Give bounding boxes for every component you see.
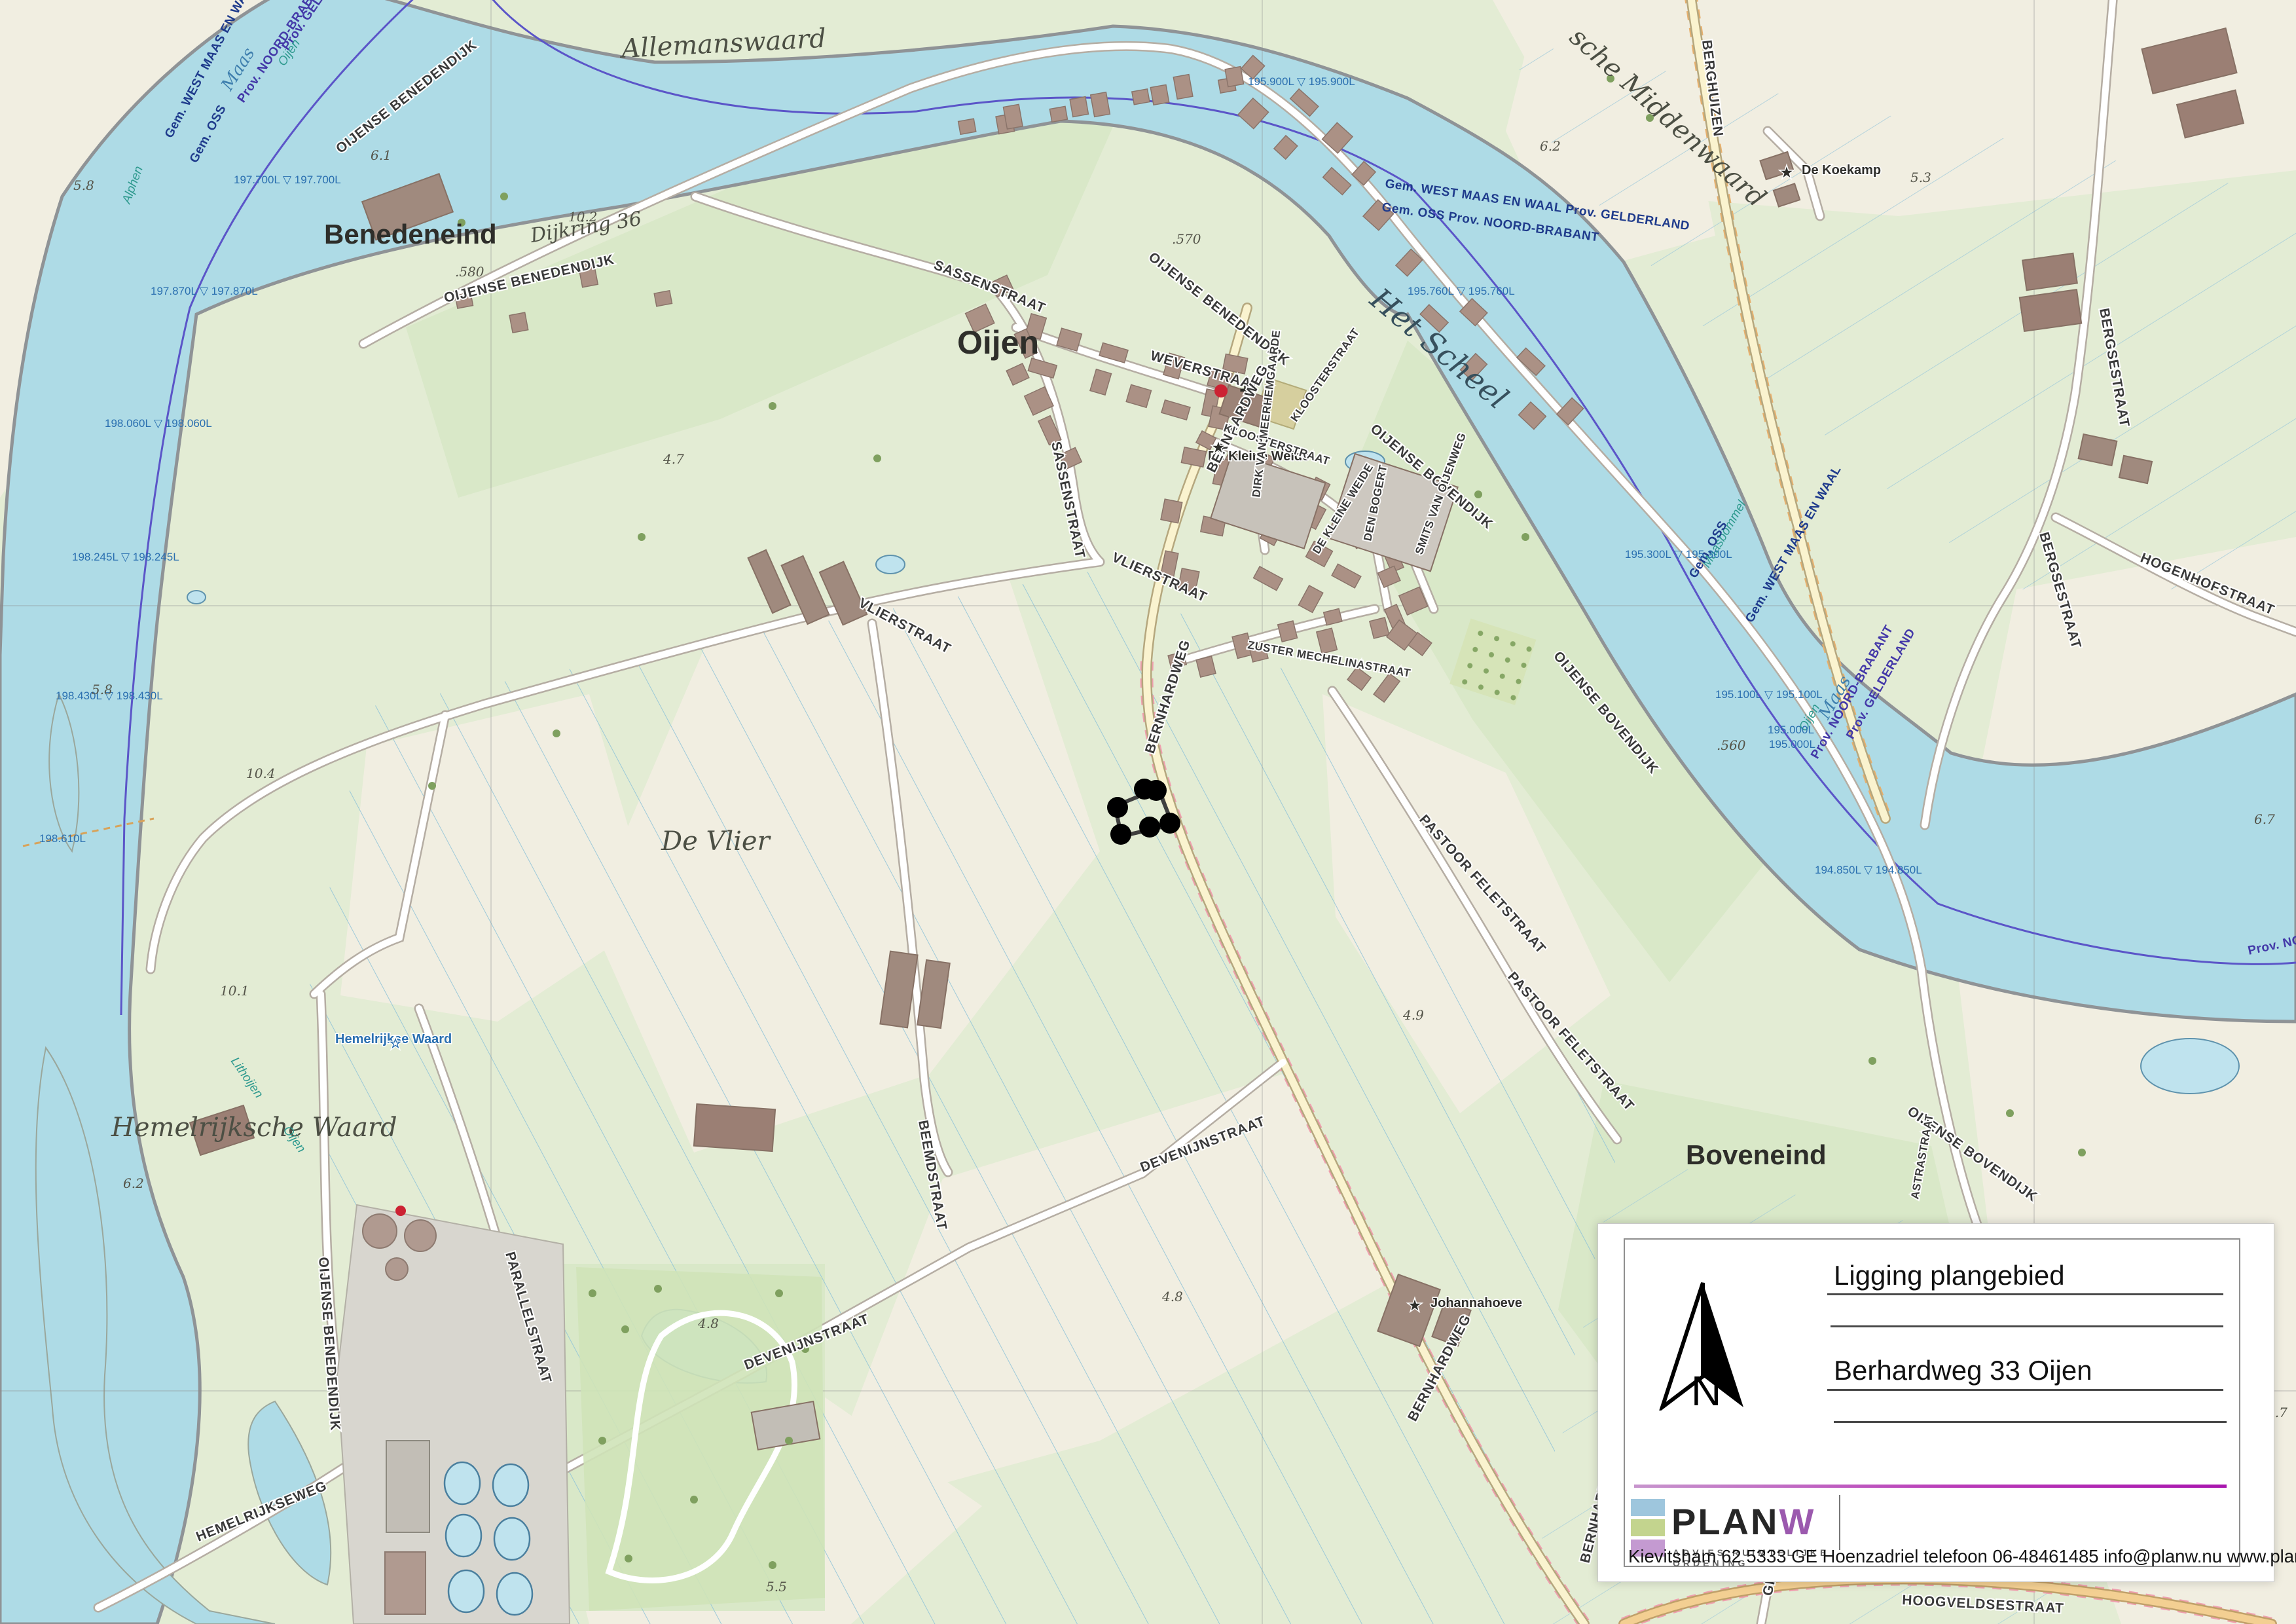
village-building — [1150, 84, 1169, 105]
treatment-plant — [337, 1205, 570, 1624]
map-label: 198.245L ▽ 198.245L — [72, 551, 179, 563]
village-building — [509, 312, 528, 333]
tree-icon — [428, 782, 436, 790]
tree-icon — [690, 1496, 698, 1504]
legend-line-2 — [1831, 1325, 2223, 1327]
village-building — [1070, 97, 1088, 117]
map-label: 6.2 — [123, 1175, 144, 1191]
village-building — [1091, 92, 1110, 117]
map-label: 195.100L ▽ 195.100L — [1715, 688, 1823, 701]
tree-icon — [598, 1437, 606, 1445]
legend-accent-rule — [1634, 1485, 2227, 1488]
plangebied-dot — [1146, 780, 1167, 801]
map-label: 6.7 — [2254, 811, 2275, 827]
village-building — [1173, 75, 1193, 100]
map-label: 5.8 — [92, 682, 113, 697]
tree-icon — [1868, 1057, 1876, 1065]
map-label: 10.1 — [220, 983, 249, 999]
map-label: 5.8 — [73, 177, 94, 193]
logo-square-green — [1631, 1519, 1665, 1536]
map-label: 10.2 — [568, 209, 598, 225]
tree-icon — [553, 729, 560, 737]
tree-icon — [621, 1325, 629, 1333]
map-label: 194.850L ▽ 194.850L — [1815, 864, 1922, 876]
map-label: 4.8 — [1161, 1289, 1183, 1304]
tree-icon — [775, 1289, 783, 1297]
tree-icon — [2078, 1149, 2086, 1156]
plangebied-dot — [1110, 824, 1131, 845]
map-label: 195.300L ▽ 195.300L — [1625, 548, 1732, 561]
village-building — [1161, 499, 1182, 523]
map-page: ✝ Allemanswaardsche MiddenwaardBenedenei… — [0, 0, 2296, 1624]
village-building — [654, 291, 672, 306]
plangebied-dot — [1139, 817, 1160, 838]
map-label: 198.610L — [39, 832, 86, 845]
tree-icon — [769, 402, 776, 410]
logo-square-blue — [1631, 1499, 1665, 1516]
map-label: 6.1 — [371, 147, 392, 163]
tree-icon — [654, 1285, 662, 1293]
plangebied-dot — [1159, 813, 1180, 834]
map-label: 4.9 — [1402, 1007, 1424, 1023]
legend-box: N Ligging plangebied Berhardweg 33 Oijen… — [1597, 1223, 2274, 1582]
logo-wordmark: PLANW — [1671, 1500, 1815, 1543]
map-label: 198.060L ▽ 198.060L — [105, 417, 212, 430]
logo-divider — [1839, 1495, 1840, 1550]
map-label: 197.870L ▽ 197.870L — [151, 285, 258, 297]
map-label: 5.5 — [766, 1579, 787, 1595]
map-label: 195.900L ▽ 195.900L — [1248, 75, 1355, 88]
map-label: Boveneind — [1686, 1139, 1827, 1170]
map-label: De Vlier — [661, 826, 772, 857]
map-label: 195.760L ▽ 195.760L — [1408, 285, 1515, 297]
village-building — [958, 119, 976, 134]
map-label: 5.3 — [1910, 170, 1931, 185]
map-label: .570 — [1172, 231, 1201, 247]
tree-icon — [638, 533, 646, 541]
legend-line-3 — [1827, 1389, 2223, 1391]
map-label: ★ — [1409, 1299, 1421, 1313]
legend-address: Berhardweg 33 Oijen — [1834, 1355, 2092, 1386]
village-building — [1225, 67, 1243, 87]
village-building — [1049, 106, 1067, 122]
tree-icon — [1522, 533, 1529, 541]
map-label: 195.000L — [1769, 738, 1815, 750]
map-label: Benedeneind — [324, 219, 497, 249]
legend-contact: Kievitsham 62 5333 GE Hoenzadriel telefo… — [1628, 1546, 2296, 1567]
map-label: 4.7 — [663, 451, 684, 467]
map-label: 6.2 — [1540, 138, 1561, 154]
tree-icon — [589, 1289, 596, 1297]
tree-icon — [500, 193, 508, 200]
map-label: .580 — [455, 264, 484, 280]
svg-text:N: N — [1691, 1367, 1721, 1411]
plant-red-dot — [395, 1206, 406, 1216]
tree-icon — [1474, 490, 1482, 498]
plangebied-dot — [1107, 797, 1128, 818]
map-label: 195.000L — [1768, 724, 1814, 736]
church-red-dot — [1214, 384, 1228, 397]
map-label: ★ — [1212, 441, 1224, 455]
map-label: ☆ — [390, 1037, 401, 1051]
tree-icon — [625, 1555, 632, 1562]
legend-title: Ligging plangebied — [1834, 1260, 2065, 1291]
tree-icon — [2006, 1109, 2014, 1117]
tree-icon — [873, 454, 881, 462]
village-building — [1132, 89, 1150, 105]
tree-icon — [769, 1561, 776, 1569]
map-label: De Koekamp — [1802, 163, 1881, 177]
map-label: .560 — [1717, 737, 1746, 753]
map-label: 10.4 — [246, 766, 276, 781]
map-label: ★ — [1781, 166, 1793, 180]
map-label: 4.8 — [697, 1316, 719, 1331]
tree-icon — [785, 1437, 793, 1445]
legend-line-1 — [1827, 1293, 2223, 1295]
legend-line-4 — [1834, 1421, 2227, 1423]
map-label: Hemelrijksche Waard — [111, 1113, 397, 1143]
village-building — [1003, 104, 1023, 129]
north-arrow-icon: N — [1650, 1280, 1755, 1411]
map-label: Johannahoeve — [1430, 1296, 1522, 1310]
map-label: Oijen — [957, 324, 1039, 361]
map-label: 197.700L ▽ 197.700L — [234, 174, 341, 186]
